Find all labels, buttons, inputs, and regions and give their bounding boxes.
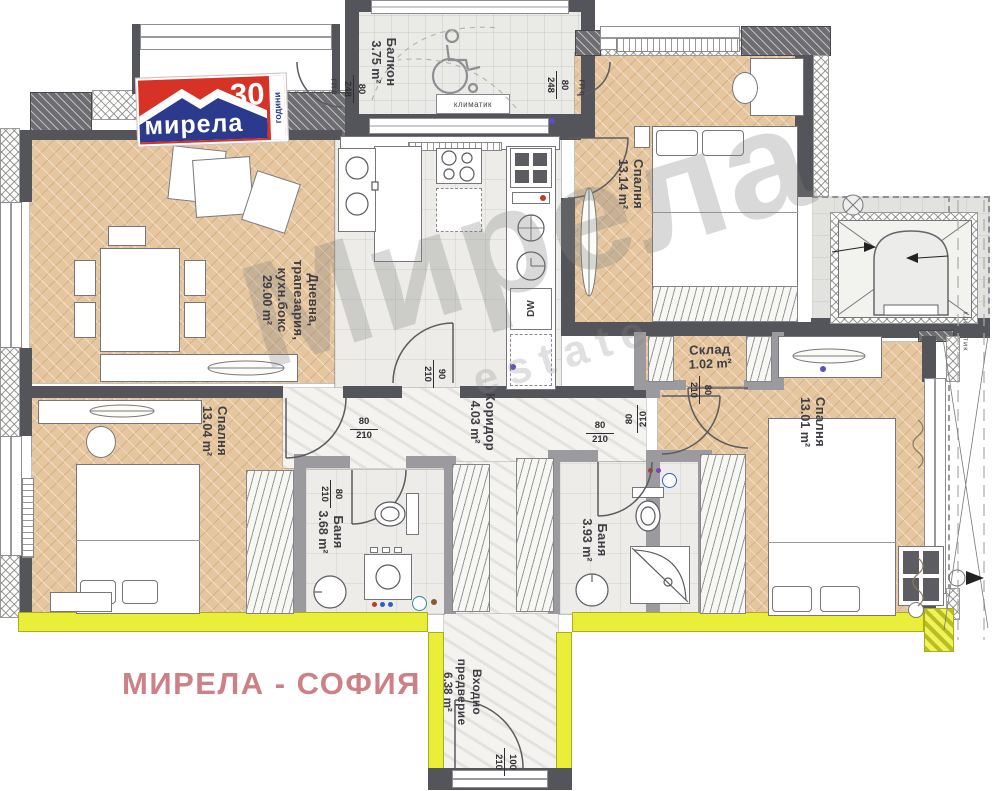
dining-chair: [108, 226, 146, 246]
dining-table: [100, 248, 180, 352]
wall-north-2: [343, 386, 402, 398]
window-bedroom-left-side: [0, 436, 22, 556]
wall-bath-right-top-1: [548, 450, 598, 462]
dining-chair: [184, 260, 206, 296]
socket: [510, 364, 516, 370]
blanket-line: [652, 212, 798, 213]
wall-north-1: [20, 386, 283, 398]
wall-yellow-corner-hatch: [924, 608, 954, 652]
dim-kitchen-door: 90210: [421, 360, 447, 388]
kitchen-cabinet-dashed: [510, 334, 552, 386]
logo-brand-name: мирела: [144, 109, 244, 141]
wall-yellow-vestibule-right: [556, 632, 572, 772]
dining-chair: [74, 302, 96, 338]
dim-bath-left-door: 80210: [318, 480, 344, 508]
wall-block-tr-1: [575, 30, 601, 56]
washing-machine: [364, 554, 412, 600]
mirela-logo: 30 мирела години: [136, 73, 288, 146]
boiler: [662, 473, 677, 488]
wall-balcony-left: [345, 6, 359, 138]
floor-plan-canvas: DW климатик: [0, 0, 1001, 791]
desk-chair-bedroom-left: [86, 426, 116, 458]
dresser-bedroom-right: [778, 336, 882, 378]
label-bath-right: Баня 3.93 m²: [579, 497, 609, 583]
blanket-line: [768, 542, 896, 543]
dining-chair: [74, 260, 96, 296]
logo-years-label: години: [272, 92, 283, 124]
wall-kitchen-bedroom-2: [561, 198, 575, 322]
logo-years-strip: години: [269, 75, 286, 139]
wall-yellow-bottom-left: [18, 612, 428, 632]
label-ac-side: климатик: [962, 312, 971, 372]
wall-right-stub-1: [922, 336, 936, 382]
window-living-left: [0, 202, 22, 348]
closet-passage-right: [516, 458, 554, 612]
kitchen-island: [374, 146, 422, 262]
window-balcony-top: [371, 0, 569, 14]
floor-drain: [412, 596, 427, 611]
fridge: [436, 188, 482, 232]
elevator-shaft-inner: [838, 220, 972, 318]
kitchen-sink-unit: [338, 148, 376, 232]
wall-bath-left-top-1: [294, 456, 350, 468]
agency-watermark-text: МИРЕЛА - СОФИЯ: [122, 666, 421, 702]
label-bedroom-left: Спалня 13.04 m²: [199, 381, 229, 481]
valve-blue: [388, 602, 393, 607]
dining-chair: [184, 302, 206, 338]
wall-block-tr-2: [741, 26, 831, 56]
radiator-bedroom-left: [22, 478, 34, 558]
wall-balcony-right: [581, 6, 595, 138]
ac-unit-label: климатик: [454, 100, 492, 109]
oven: [510, 148, 552, 188]
appliance-indicator: [540, 195, 546, 201]
label-bedroom-right: Спалня 13.01 m²: [797, 372, 827, 472]
wall-left-1: [20, 130, 32, 202]
pillow: [772, 586, 812, 612]
insulation-left-2: [0, 346, 20, 438]
blanket-line: [76, 540, 200, 541]
wall-bedroom-right-left-1: [646, 388, 660, 398]
dim-note-left: ГП 0: [329, 79, 338, 95]
dim-bedroom-right-door: 80210: [624, 405, 650, 433]
label-bedroom-top: Спалня 13.14 m²: [615, 134, 645, 234]
valve-brown: [431, 599, 437, 605]
wall-bedroom-left-right: [294, 454, 306, 614]
dim-note-right: ГП 0: [577, 80, 586, 96]
toilet-tank-bath-left: [406, 493, 419, 535]
wardrobe-bedroom-left: [246, 470, 294, 614]
pillow: [122, 580, 158, 604]
hose: [382, 547, 390, 553]
desk-bedroom-top: [750, 58, 804, 116]
stool: [908, 602, 924, 618]
insulation-right-upper: [813, 55, 829, 197]
window-kitchen-balcony: [369, 118, 549, 134]
closet-passage-left: [452, 464, 490, 612]
logo-anniversary-number: 30: [229, 76, 265, 113]
insulation-left-1: [0, 128, 20, 204]
label-storage: Склад 1.02 m²: [647, 336, 772, 378]
valve-red: [648, 468, 653, 473]
valve-purple: [656, 468, 661, 473]
label-entry: Входно предверие 6.38 m²: [440, 642, 484, 742]
valve-blue: [380, 602, 385, 607]
dim-bedroom-left-door: 80210: [350, 416, 378, 442]
shelf-bedroom-left: [38, 400, 202, 424]
wall-balcony-top-r: [567, 0, 595, 12]
wall-bath-left-top-2: [406, 456, 446, 468]
label-balcony: Балкон 3.75 m²: [368, 27, 398, 97]
shower-tray: [630, 546, 690, 604]
wardrobe-bedroom-top: [652, 286, 798, 322]
dim-balcony-left: 80248: [341, 75, 367, 103]
corner-table-bedroom-right: [898, 546, 944, 606]
label-corridor: Коридор 4.03 m²: [467, 372, 497, 472]
label-living-room: Дневна, трапезария, кухн.бокс 29.00 m²: [235, 240, 345, 360]
dim-balcony-right: 80248: [544, 71, 570, 99]
wall-left-3: [20, 556, 32, 614]
wall-kitchen-bedroom-1: [561, 130, 575, 140]
dishwasher-label: DW: [526, 300, 537, 317]
window-living-top: [140, 24, 332, 50]
pillow: [656, 130, 698, 156]
hose: [394, 547, 402, 553]
cabinet-small: [50, 592, 112, 612]
wardrobe-bedroom-right: [700, 454, 746, 614]
ac-unit-box: климатик: [436, 94, 510, 114]
desk-chair-bedroom-top: [732, 72, 758, 104]
insulation-left-3: [0, 554, 20, 618]
wall-balcony-top-l: [345, 0, 373, 12]
radiator-bedroom-top: [616, 38, 740, 52]
pillow: [702, 130, 744, 156]
stove: [436, 148, 482, 184]
dim-storage-door: 80210: [687, 376, 713, 404]
dim-bath-right-door: 80210: [586, 420, 614, 446]
pillow: [820, 586, 860, 612]
valve-red: [372, 602, 377, 607]
hose: [370, 547, 378, 553]
socket: [549, 118, 555, 124]
dim-entry-door: 100210: [492, 748, 518, 776]
toilet-tank-bath-right: [632, 487, 664, 498]
insulation-right-1: [946, 336, 960, 382]
